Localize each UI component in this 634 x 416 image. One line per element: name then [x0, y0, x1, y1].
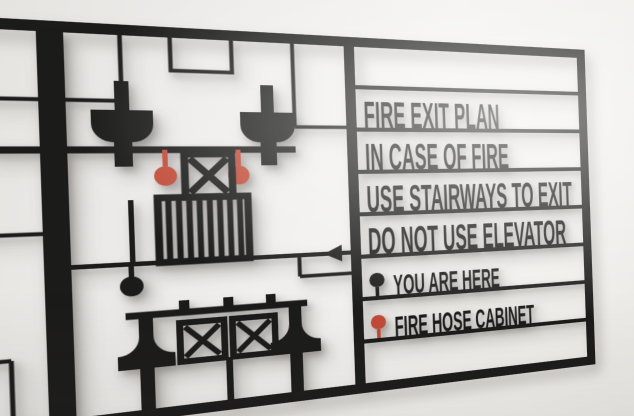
- you-are-here-pin-icon: [369, 272, 385, 296]
- door-jamb-upper-right: [239, 84, 296, 165]
- fire-hose-pin-1: [153, 150, 177, 186]
- stairway-symbol: [158, 196, 250, 263]
- floor-plan-drawing: [0, 23, 355, 416]
- text-row: IN CASE OF FIRE: [357, 132, 581, 174]
- text-row: FIRE EXIT PLAN: [355, 89, 579, 133]
- lower-core-wall: [126, 303, 308, 317]
- text-panel: FIRE EXIT PLAN IN CASE OF FIRE USE STAIR…: [354, 47, 587, 383]
- fire-hose-pin-icon: [371, 314, 387, 338]
- corridor-wall: [49, 32, 63, 416]
- wall: FIRE EXIT PLAN IN CASE OF FIRE USE STAIR…: [0, 0, 634, 416]
- legend-label: FIRE HOSE CABINET: [394, 301, 534, 341]
- direction-arrow-icon: [324, 245, 343, 263]
- sign-perspective-wrapper: FIRE EXIT PLAN IN CASE OF FIRE USE STAIR…: [0, 10, 595, 416]
- message-label: IN CASE OF FIRE: [364, 138, 509, 176]
- corridor-line-top: [0, 150, 296, 151]
- fire-exit-sign: FIRE EXIT PLAN IN CASE OF FIRE USE STAIR…: [0, 10, 595, 416]
- floor-plan: [0, 23, 355, 416]
- elevator-symbol-bottom-left: [180, 319, 226, 361]
- lower-core-stem: [229, 357, 230, 399]
- door-jamb-upper-left: [89, 80, 154, 167]
- elevator-symbol-top: [184, 154, 233, 197]
- text-row-spacer: [354, 47, 578, 96]
- elevator-symbol-bottom-right: [232, 315, 276, 356]
- message-label: FIRE EXIT PLAN: [363, 96, 500, 135]
- door-jamb-lower-left: [116, 313, 177, 413]
- you-are-here-pin: [119, 264, 144, 297]
